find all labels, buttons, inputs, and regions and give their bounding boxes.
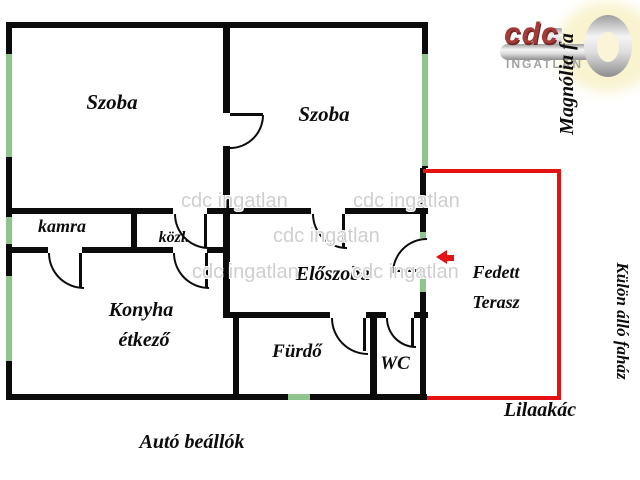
- wall-h2: [82, 247, 173, 253]
- wall-outer-bottom: [6, 394, 427, 400]
- room-label-szoba1: Szoba: [52, 91, 172, 114]
- door-leaf: [363, 318, 366, 351]
- label-kulon-allo-fahaz: Külön álló faház: [607, 251, 631, 391]
- window-segment: [422, 54, 428, 166]
- room-label-furdo: Fürdő: [237, 342, 357, 363]
- label-magnolia-fa: Magnólia fa: [556, 14, 580, 154]
- watermark-text: cdc ingatlan: [273, 225, 380, 248]
- wall-h3: [223, 312, 330, 318]
- wall-h1: [6, 208, 173, 214]
- watermark-text: cdc ingatlan: [352, 261, 459, 284]
- window-segment: [288, 394, 310, 400]
- room-label-terasz: Terasz: [436, 293, 556, 313]
- wall-outer-top: [6, 22, 428, 28]
- brand-logo-text: cdc: [504, 19, 559, 49]
- label-lilaakac: Lilaakác: [480, 399, 600, 421]
- terrace-outline-right: [557, 169, 561, 400]
- watermark-text: cdc ingatlan: [192, 261, 299, 284]
- wall-h2: [207, 247, 230, 253]
- label-auto-beallok: Autó beállók: [112, 431, 272, 453]
- watermark-text: cdc ingatlan: [353, 190, 460, 213]
- door-arc: [230, 115, 264, 149]
- room-label-kamra: kamra: [12, 217, 112, 237]
- window-segment: [6, 276, 12, 361]
- window-segment: [6, 54, 12, 157]
- room-label-kozl: közl.: [134, 229, 214, 247]
- wall-h3: [414, 312, 428, 318]
- door-leaf: [230, 113, 263, 116]
- wall-divider-v1: [223, 22, 230, 113]
- wall-divider-v1: [223, 146, 230, 318]
- door-leaf: [79, 253, 82, 288]
- wall-h2: [6, 247, 48, 253]
- floorplan-canvas: Szoba Szoba kamra közl. Előszoba Konyha …: [0, 0, 640, 480]
- door-leaf: [411, 318, 414, 347]
- room-label-etkezo: étkező: [74, 329, 214, 351]
- room-label-wc: WC: [355, 354, 435, 375]
- terrace-outline-top: [423, 169, 561, 173]
- watermark-text: cdc ingatlan: [181, 190, 288, 213]
- room-label-szoba2: Szoba: [264, 103, 384, 126]
- room-label-konyha: Konyha: [71, 299, 211, 321]
